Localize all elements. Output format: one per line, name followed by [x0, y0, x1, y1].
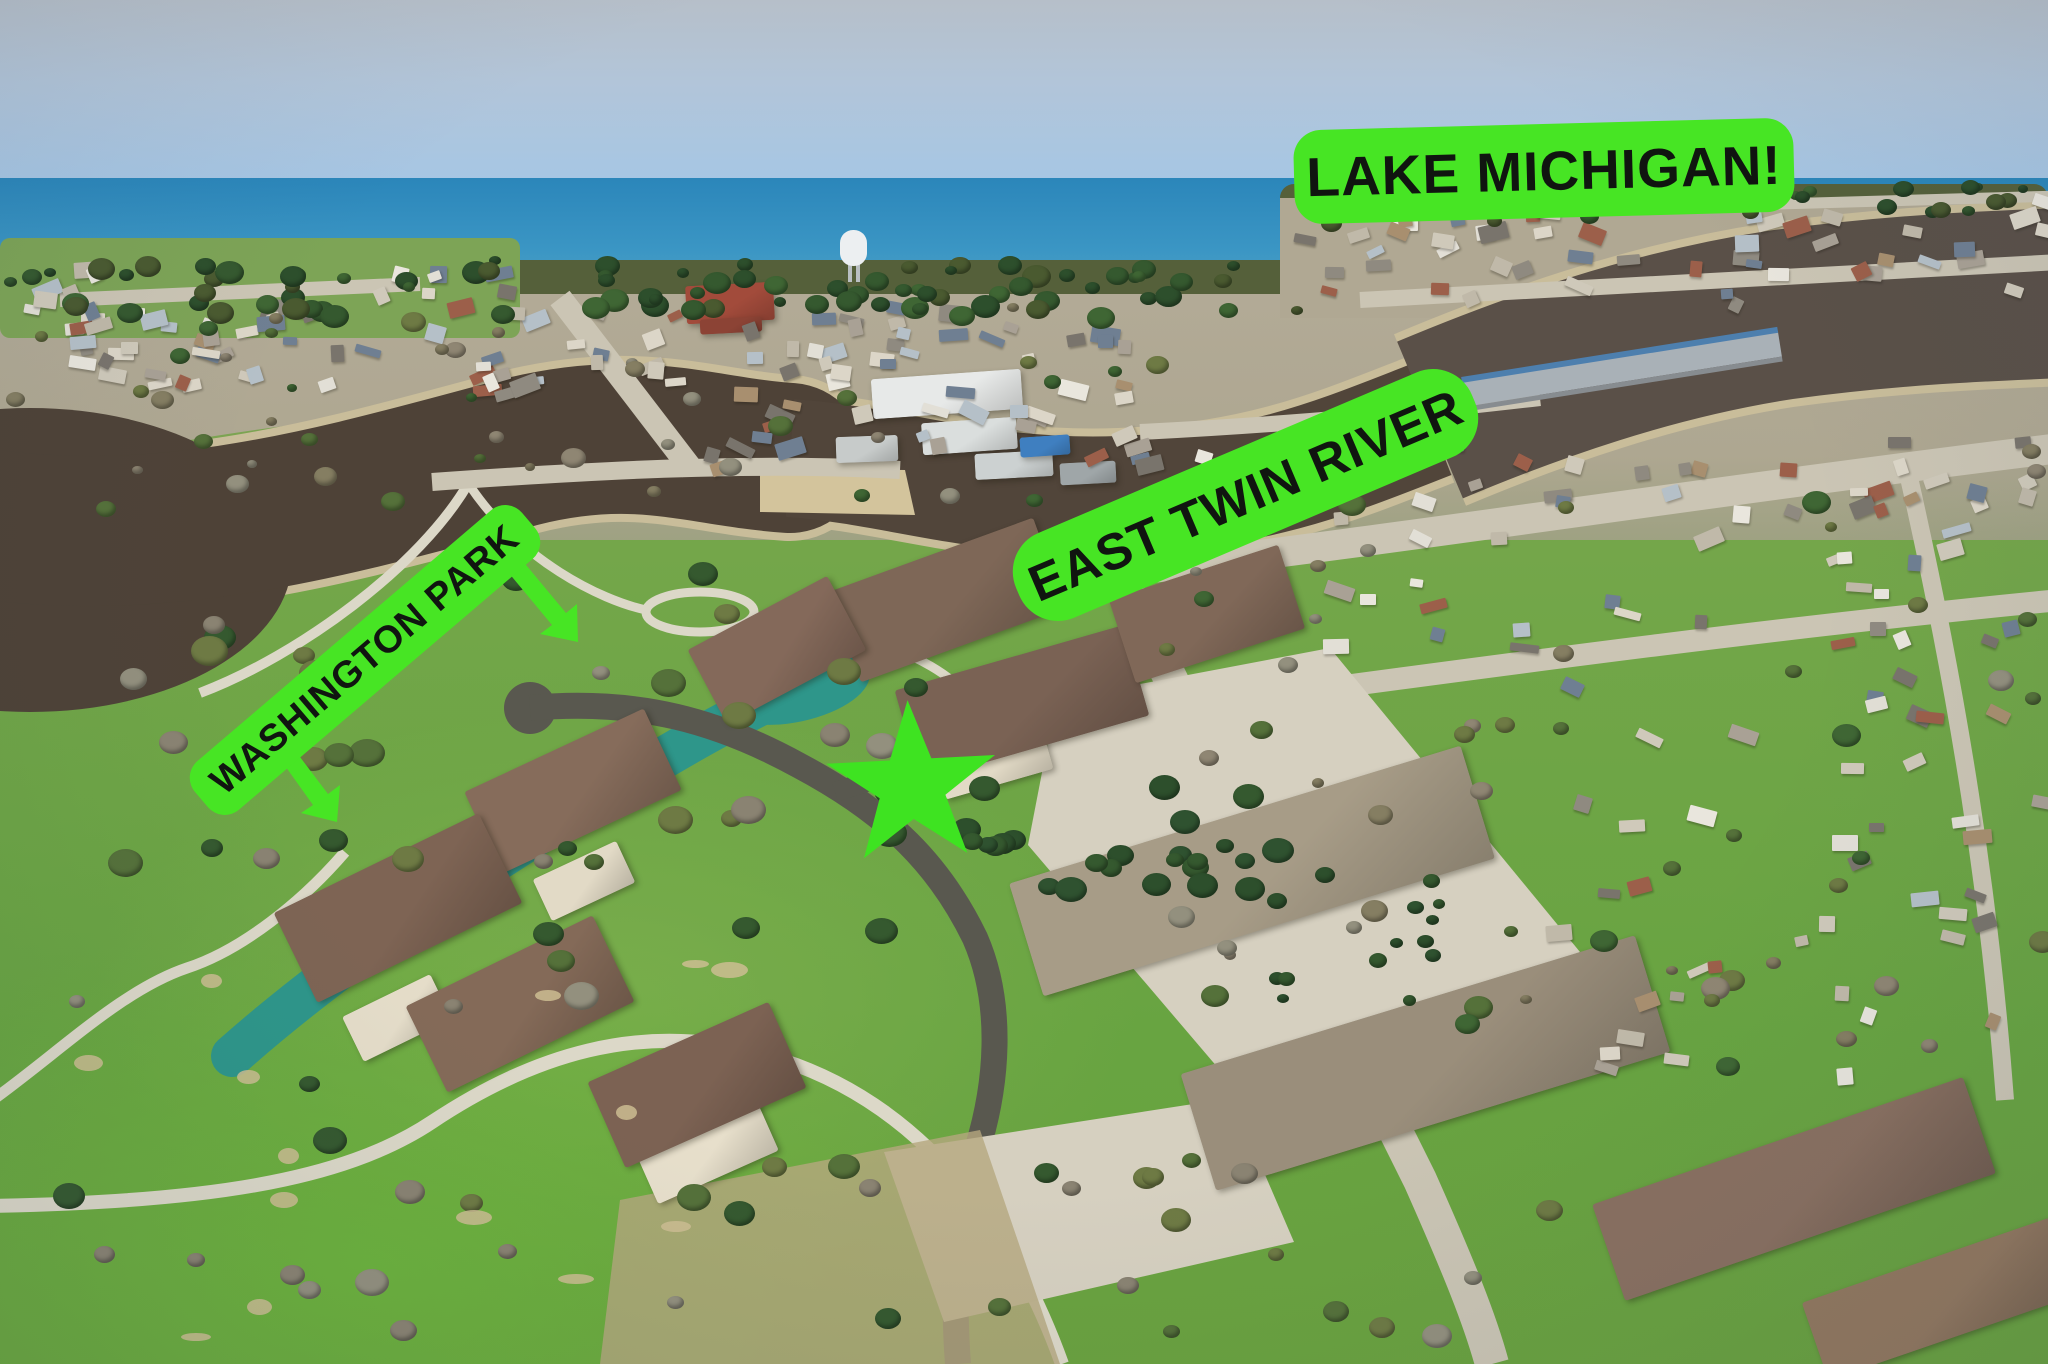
aerial-photo: LAKE MICHIGAN! EAST TWIN RIVER WASHINGTO…: [0, 0, 2048, 1364]
label-lake-michigan: LAKE MICHIGAN!: [1293, 117, 1795, 224]
